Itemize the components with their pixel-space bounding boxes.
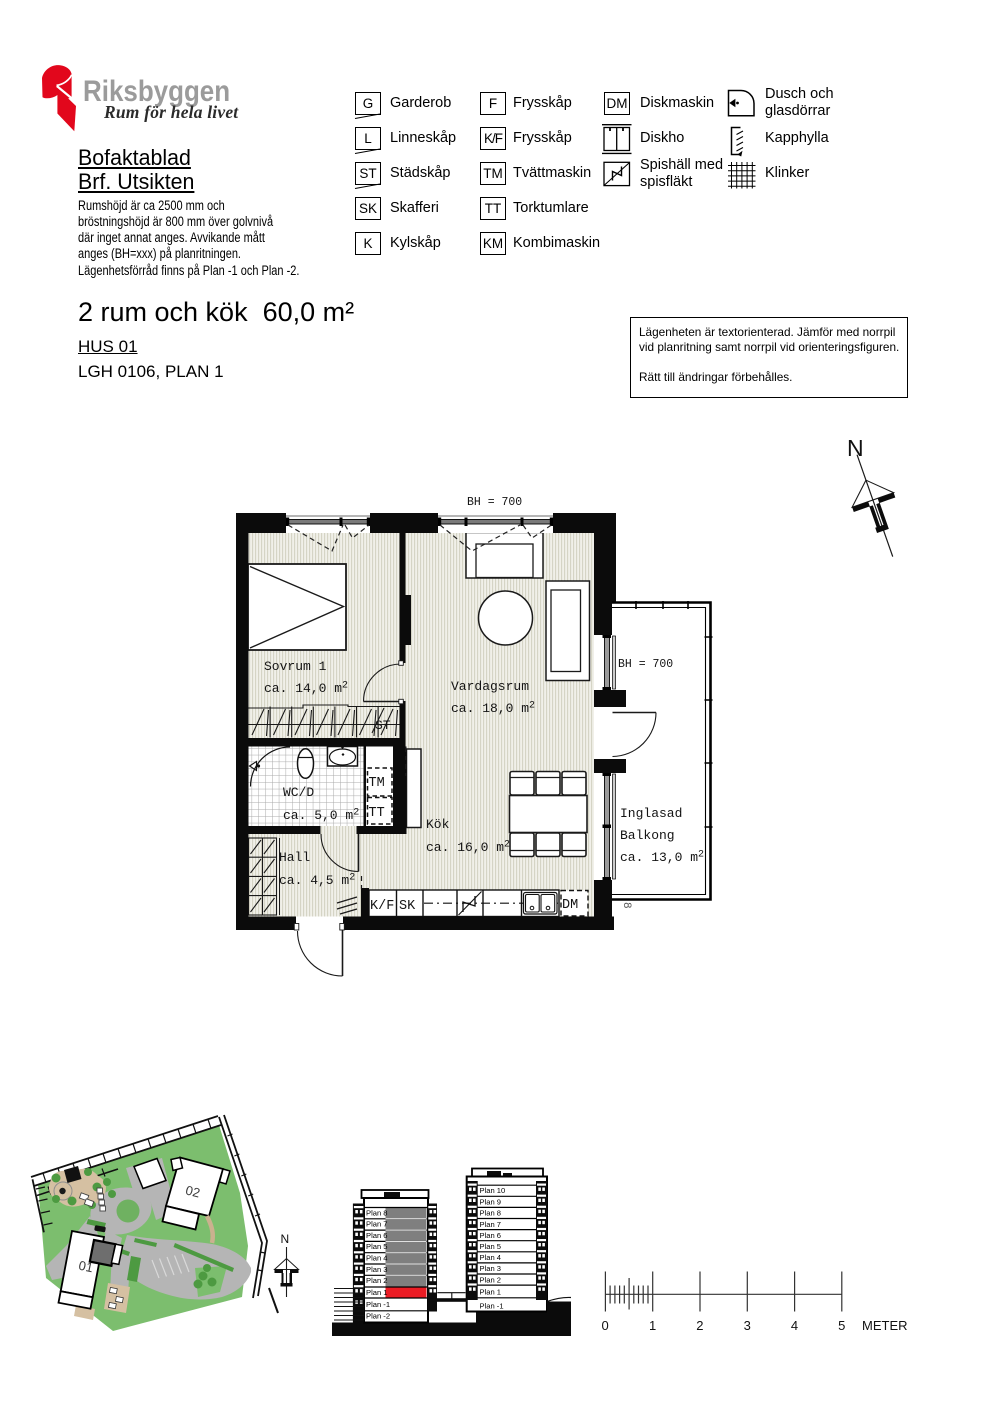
svg-text:0: 0 xyxy=(602,1318,609,1333)
svg-text:Plan 8: Plan 8 xyxy=(366,1208,388,1217)
svg-text:Plan 5: Plan 5 xyxy=(366,1242,388,1251)
svg-text:ca. 18,0 m2: ca. 18,0 m2 xyxy=(451,701,535,717)
svg-text:Plan 6: Plan 6 xyxy=(480,1231,502,1240)
svg-text:3: 3 xyxy=(744,1318,751,1333)
svg-text:SK: SK xyxy=(399,899,416,914)
svg-text:Plan 3: Plan 3 xyxy=(480,1264,502,1273)
svg-text:DM: DM xyxy=(562,898,578,913)
svg-text:Plan 1: Plan 1 xyxy=(366,1288,388,1297)
svg-text:Plan 10: Plan 10 xyxy=(480,1186,506,1195)
svg-text:ca. 16,0 m2: ca. 16,0 m2 xyxy=(426,840,510,856)
svg-text:2: 2 xyxy=(696,1318,703,1333)
svg-text:TM: TM xyxy=(369,776,385,791)
svg-text:Hall: Hall xyxy=(279,850,310,865)
svg-text:METER: METER xyxy=(862,1318,908,1333)
svg-text:Plan 7: Plan 7 xyxy=(366,1220,388,1229)
svg-text:Plan 7: Plan 7 xyxy=(480,1220,502,1229)
svg-text:4: 4 xyxy=(791,1318,798,1333)
svg-text:Vardagsrum: Vardagsrum xyxy=(451,679,529,694)
svg-text:1: 1 xyxy=(649,1318,656,1333)
svg-text:Balkong: Balkong xyxy=(620,828,675,843)
svg-text:Plan 3: Plan 3 xyxy=(366,1265,388,1274)
svg-text:Plan -1: Plan -1 xyxy=(480,1302,504,1311)
svg-text:01: 01 xyxy=(77,1258,94,1276)
svg-text:ca. 4,5 m2: ca. 4,5 m2 xyxy=(279,873,355,889)
svg-text:BH = 700: BH = 700 xyxy=(467,496,522,509)
svg-text:TT: TT xyxy=(369,806,385,821)
svg-text:ca. 13,0 m2: ca. 13,0 m2 xyxy=(620,850,704,866)
svg-text:Plan 4: Plan 4 xyxy=(480,1253,502,1262)
svg-text:8: 8 xyxy=(620,902,632,909)
svg-text:Sovrum 1: Sovrum 1 xyxy=(264,659,327,674)
svg-text:WC/D: WC/D xyxy=(283,785,314,800)
svg-text:ca. 14,0 m2: ca. 14,0 m2 xyxy=(264,681,348,697)
svg-text:ca. 5,0 m2: ca. 5,0 m2 xyxy=(283,808,359,824)
svg-text:Inglasad: Inglasad xyxy=(620,806,682,821)
svg-text:K/F: K/F xyxy=(370,899,394,914)
svg-text:Plan 2: Plan 2 xyxy=(480,1275,502,1284)
svg-text:N: N xyxy=(281,1232,290,1246)
svg-text:Plan -1: Plan -1 xyxy=(366,1300,390,1309)
svg-text:Plan 4: Plan 4 xyxy=(366,1254,388,1263)
svg-text:Plan 9: Plan 9 xyxy=(480,1198,502,1207)
svg-text:N: N xyxy=(847,435,864,461)
svg-text:ST: ST xyxy=(375,718,391,733)
svg-text:Plan 6: Plan 6 xyxy=(366,1231,388,1240)
svg-text:5: 5 xyxy=(838,1318,845,1333)
svg-text:Plan 5: Plan 5 xyxy=(480,1242,502,1251)
svg-text:Plan 8: Plan 8 xyxy=(480,1209,502,1218)
svg-text:Plan 1: Plan 1 xyxy=(480,1287,502,1296)
svg-text:Plan 2: Plan 2 xyxy=(366,1276,388,1285)
svg-text:Kök: Kök xyxy=(426,817,450,832)
svg-text:Plan -2: Plan -2 xyxy=(366,1312,390,1321)
svg-text:BH = 700: BH = 700 xyxy=(618,658,673,671)
